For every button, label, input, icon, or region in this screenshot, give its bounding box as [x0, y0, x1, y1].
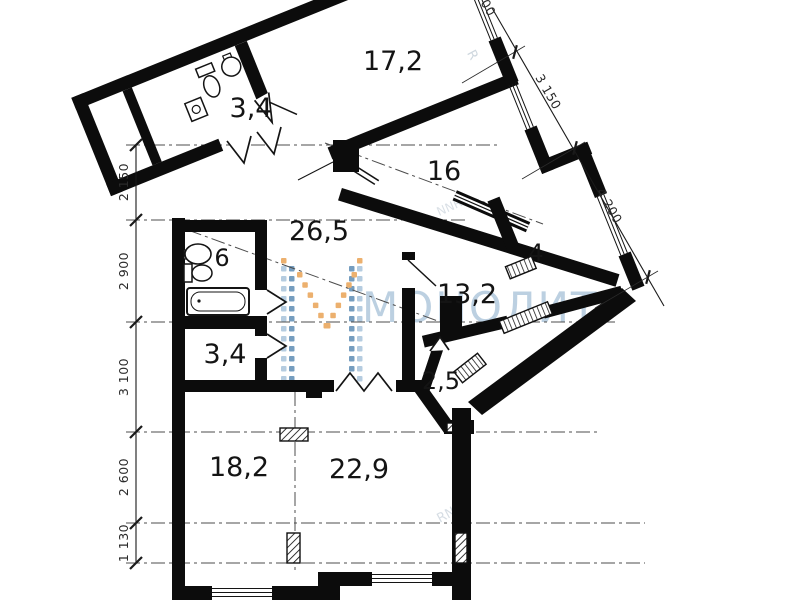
logo-dot — [357, 346, 363, 352]
room-label-bedroom-1: 17,2 — [363, 46, 423, 77]
logo-dot — [349, 346, 355, 352]
dim-label-left-0: 2 150 — [116, 163, 131, 201]
logo-dot — [289, 306, 295, 312]
window-bottom-right — [372, 575, 432, 583]
logo-dot — [349, 336, 355, 342]
floorplan-drawing: МОНОЛИТ R NNR RNN — [0, 0, 800, 600]
logo-dot — [357, 356, 363, 362]
logo-dot — [336, 303, 342, 309]
room-label-bedroom-2: 16 — [427, 156, 461, 187]
room-label-storage: 4 — [528, 239, 543, 267]
logo-dot — [289, 316, 295, 322]
watermark-fragment: R — [463, 48, 480, 63]
logo-dot — [349, 366, 355, 372]
logo-dot — [289, 366, 295, 372]
logo-dot — [318, 313, 324, 319]
logo-dot — [289, 346, 295, 352]
logo-dot — [281, 266, 287, 272]
logo-dot — [289, 296, 295, 302]
logo-dot — [349, 326, 355, 332]
dim-label-left-4: 1 130 — [116, 524, 131, 562]
logo-dot — [281, 306, 287, 312]
room-label-hall: 26,5 — [289, 216, 349, 247]
logo-dot — [297, 272, 303, 278]
logo-dot — [281, 336, 287, 342]
logo-dot — [289, 336, 295, 342]
logo-dot — [289, 356, 295, 362]
sink-icon — [184, 244, 211, 264]
room-label-balcony: 2,5 — [422, 367, 460, 395]
dim-label-left-3: 2 600 — [116, 458, 131, 496]
room-label-bathroom: 6 — [214, 244, 229, 272]
logo-dot — [349, 316, 355, 322]
window-bottom-left — [212, 589, 272, 597]
logo-dot — [281, 286, 287, 292]
dim-label-left-2: 3 100 — [116, 358, 131, 396]
floorplan-page: МОНОЛИТ R NNR RNN — [0, 0, 800, 600]
logo-dot — [281, 276, 287, 282]
logo-dot — [349, 296, 355, 302]
logo-dot — [357, 266, 363, 272]
logo-dot — [357, 336, 363, 342]
washer-icon — [185, 97, 208, 121]
logo-dot — [289, 326, 295, 332]
dimension-left: 2 150 2 900 3 100 2 600 1 130 — [116, 139, 142, 569]
toilet-icon — [184, 264, 212, 282]
room-label-bedroom-3: 13,2 — [437, 279, 497, 310]
logo-dot — [349, 356, 355, 362]
logo-dot — [302, 282, 308, 288]
logo-dot — [313, 303, 319, 309]
logo-dot — [341, 292, 347, 298]
monolit-logo-icon — [281, 258, 363, 382]
room-labels: 3,4 17,2 16 26,5 6 4 13,2 3,4 2,5 18,2 2… — [204, 46, 544, 485]
toilet-top-icon — [196, 63, 224, 100]
logo-dot — [349, 266, 355, 272]
logo-dot — [308, 292, 314, 298]
logo-dot — [281, 356, 287, 362]
logo-dot — [349, 306, 355, 312]
logo-dot — [357, 376, 363, 382]
logo-dot — [346, 282, 352, 288]
logo-dot — [289, 286, 295, 292]
room-label-zone-kitchen: 18,2 — [209, 452, 269, 483]
bathtub-icon — [187, 288, 249, 315]
room-label-zone-living: 22,9 — [329, 454, 389, 485]
logo-dot — [325, 323, 331, 329]
logo-dot — [281, 258, 287, 264]
logo-dot — [357, 276, 363, 282]
logo-dot — [281, 316, 287, 322]
logo-dot — [289, 276, 295, 282]
logo-dot — [281, 326, 287, 332]
logo-dot — [352, 272, 358, 278]
dim-label-left-1: 2 900 — [116, 252, 131, 290]
dim-label-right-1: 4 200 — [593, 185, 625, 226]
logo-dot — [357, 366, 363, 372]
logo-dot — [357, 258, 363, 264]
room-label-wc-lower: 3,4 — [204, 339, 247, 370]
room-label-wc-top: 3,4 — [230, 93, 273, 124]
dim-label-right-0: 3 150 — [532, 71, 564, 112]
window-right-2 — [509, 82, 533, 129]
logo-dot — [330, 313, 336, 319]
logo-dot — [281, 366, 287, 372]
